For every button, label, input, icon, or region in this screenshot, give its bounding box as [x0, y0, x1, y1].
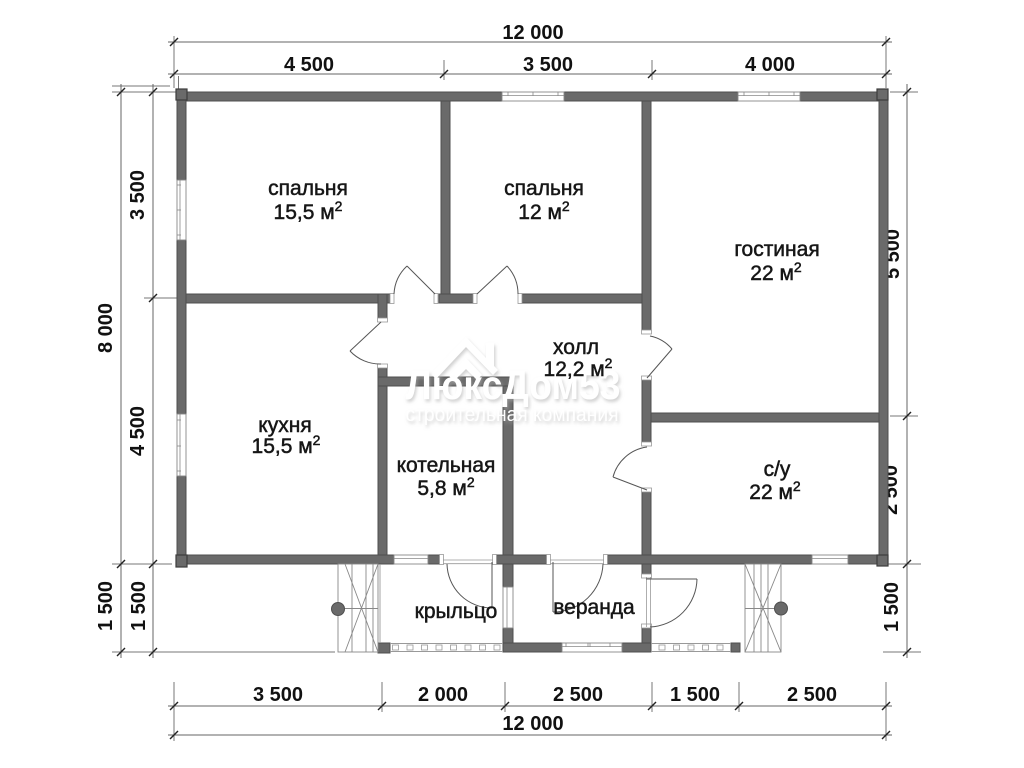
svg-text:холл: холл — [553, 336, 599, 359]
svg-text:котельная: котельная — [397, 454, 496, 477]
svg-text:1 500: 1 500 — [128, 581, 150, 631]
svg-text:12 000: 12 000 — [502, 22, 563, 44]
svg-text:4 000: 4 000 — [745, 54, 795, 76]
svg-text:15,5 м2: 15,5 м2 — [274, 198, 343, 224]
svg-text:12 м2: 12 м2 — [518, 198, 570, 224]
svg-text:кухня: кухня — [258, 414, 311, 437]
svg-text:22 м2: 22 м2 — [749, 478, 801, 504]
svg-text:крыльцо: крыльцо — [415, 600, 498, 623]
svg-text:8 000: 8 000 — [95, 303, 117, 353]
svg-text:2 500: 2 500 — [787, 684, 837, 706]
svg-text:1 500: 1 500 — [670, 684, 720, 706]
svg-text:спальня: спальня — [268, 177, 348, 200]
svg-text:гостиная: гостиная — [734, 238, 819, 261]
svg-text:1 500: 1 500 — [881, 582, 903, 632]
svg-text:3 500: 3 500 — [253, 684, 303, 706]
svg-text:строительная компания: строительная компания — [406, 404, 619, 426]
svg-text:веранда: веранда — [553, 596, 635, 619]
svg-text:3 500: 3 500 — [127, 170, 149, 220]
svg-text:3 500: 3 500 — [523, 54, 573, 76]
svg-text:с/у: с/у — [764, 458, 791, 481]
svg-text:12,2 м2: 12,2 м2 — [544, 355, 613, 381]
svg-text:22 м2: 22 м2 — [750, 259, 802, 285]
svg-text:спальня: спальня — [504, 177, 584, 200]
svg-text:15,5 м2: 15,5 м2 — [252, 432, 321, 458]
svg-text:1 500: 1 500 — [95, 581, 117, 631]
svg-text:5,8 м2: 5,8 м2 — [417, 474, 474, 500]
svg-text:2 000: 2 000 — [418, 684, 468, 706]
svg-text:2 500: 2 500 — [553, 684, 603, 706]
svg-text:4 500: 4 500 — [127, 406, 149, 456]
svg-text:4 500: 4 500 — [284, 54, 334, 76]
svg-text:12 000: 12 000 — [502, 713, 563, 735]
